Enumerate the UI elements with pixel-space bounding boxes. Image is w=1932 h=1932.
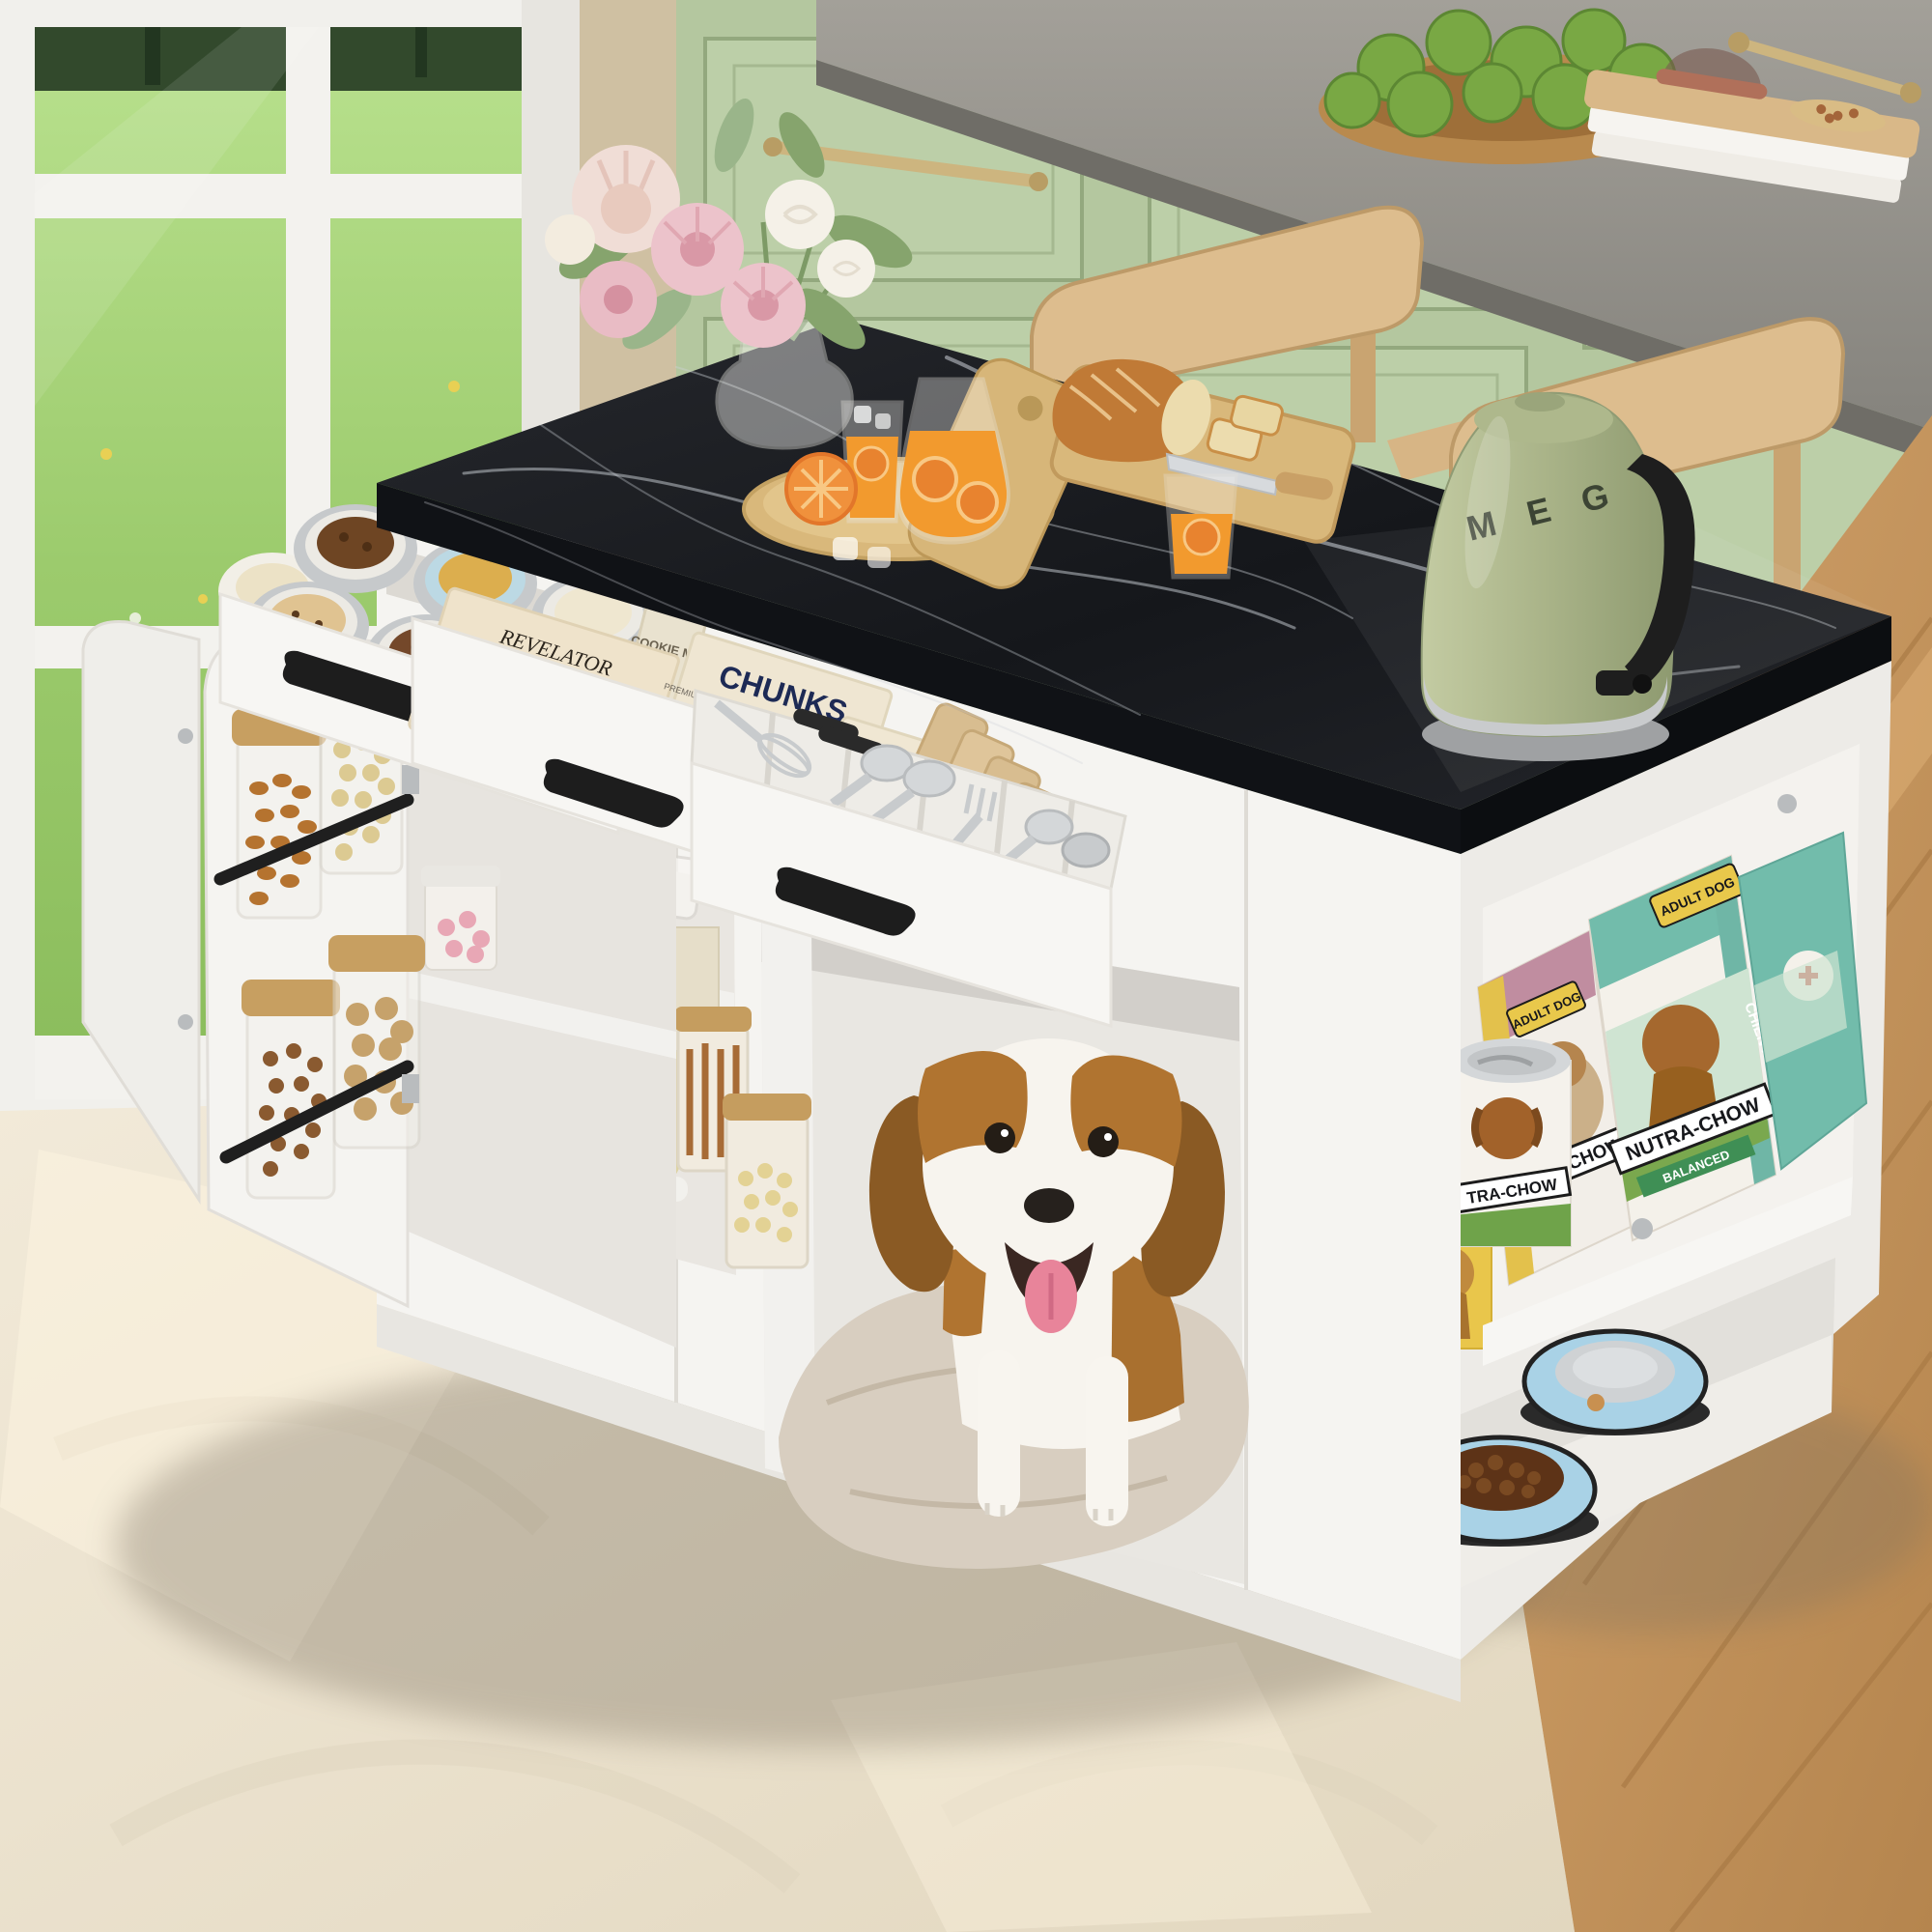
- dog-leg-right: [1086, 1356, 1128, 1526]
- interior-jar-pink: [421, 866, 500, 970]
- dog-den: [761, 908, 1249, 1584]
- ice-cube: [833, 537, 858, 560]
- orange-half: [786, 454, 856, 524]
- orange-slice: [855, 447, 888, 480]
- bowl-puppy-graphic: [1587, 1394, 1605, 1411]
- dog-eye-left: [984, 1122, 1015, 1153]
- dog-nose: [1024, 1188, 1074, 1223]
- ice-cube: [875, 413, 891, 429]
- scene-svg: NUTRA-CHOW ADULT DOG: [0, 0, 1932, 1932]
- bamboo-lid: [328, 935, 425, 972]
- orange-slice: [958, 483, 997, 522]
- cam-bolt-1: [1632, 1218, 1653, 1239]
- cinnamon-jar-lid: [674, 1007, 752, 1032]
- dog-eye-right: [1088, 1126, 1119, 1157]
- nut-jar-star-anise: [241, 980, 340, 1198]
- cam-bolt-2: [1777, 794, 1797, 813]
- dog-food-can-front: TRA-CHOW: [1453, 1038, 1571, 1246]
- can-dog-head: [1476, 1097, 1538, 1159]
- kettle-lever: [1596, 670, 1634, 696]
- orange-slice: [914, 458, 956, 500]
- kettle-lid-knob: [1515, 392, 1565, 412]
- chickpea-jar: [726, 1115, 808, 1267]
- orange-slice: [1184, 520, 1219, 554]
- dog-blaze: [1030, 1046, 1068, 1159]
- pet-bowl-empty: [1520, 1331, 1710, 1435]
- bamboo-lid: [241, 980, 340, 1016]
- hinge-top: [402, 765, 419, 794]
- chickpea-jar-lid: [723, 1094, 811, 1121]
- nut-jar-walnuts: [328, 935, 425, 1148]
- juice-wine-glass: [1165, 475, 1236, 578]
- ice-cube: [854, 406, 871, 423]
- product-photo-scene: NUTRA-CHOW ADULT DOG: [0, 0, 1932, 1932]
- dog-leg-left: [978, 1350, 1020, 1517]
- nut-jar-almonds: [232, 709, 327, 918]
- ice-cube: [867, 547, 891, 568]
- hinge-bottom: [402, 1074, 419, 1103]
